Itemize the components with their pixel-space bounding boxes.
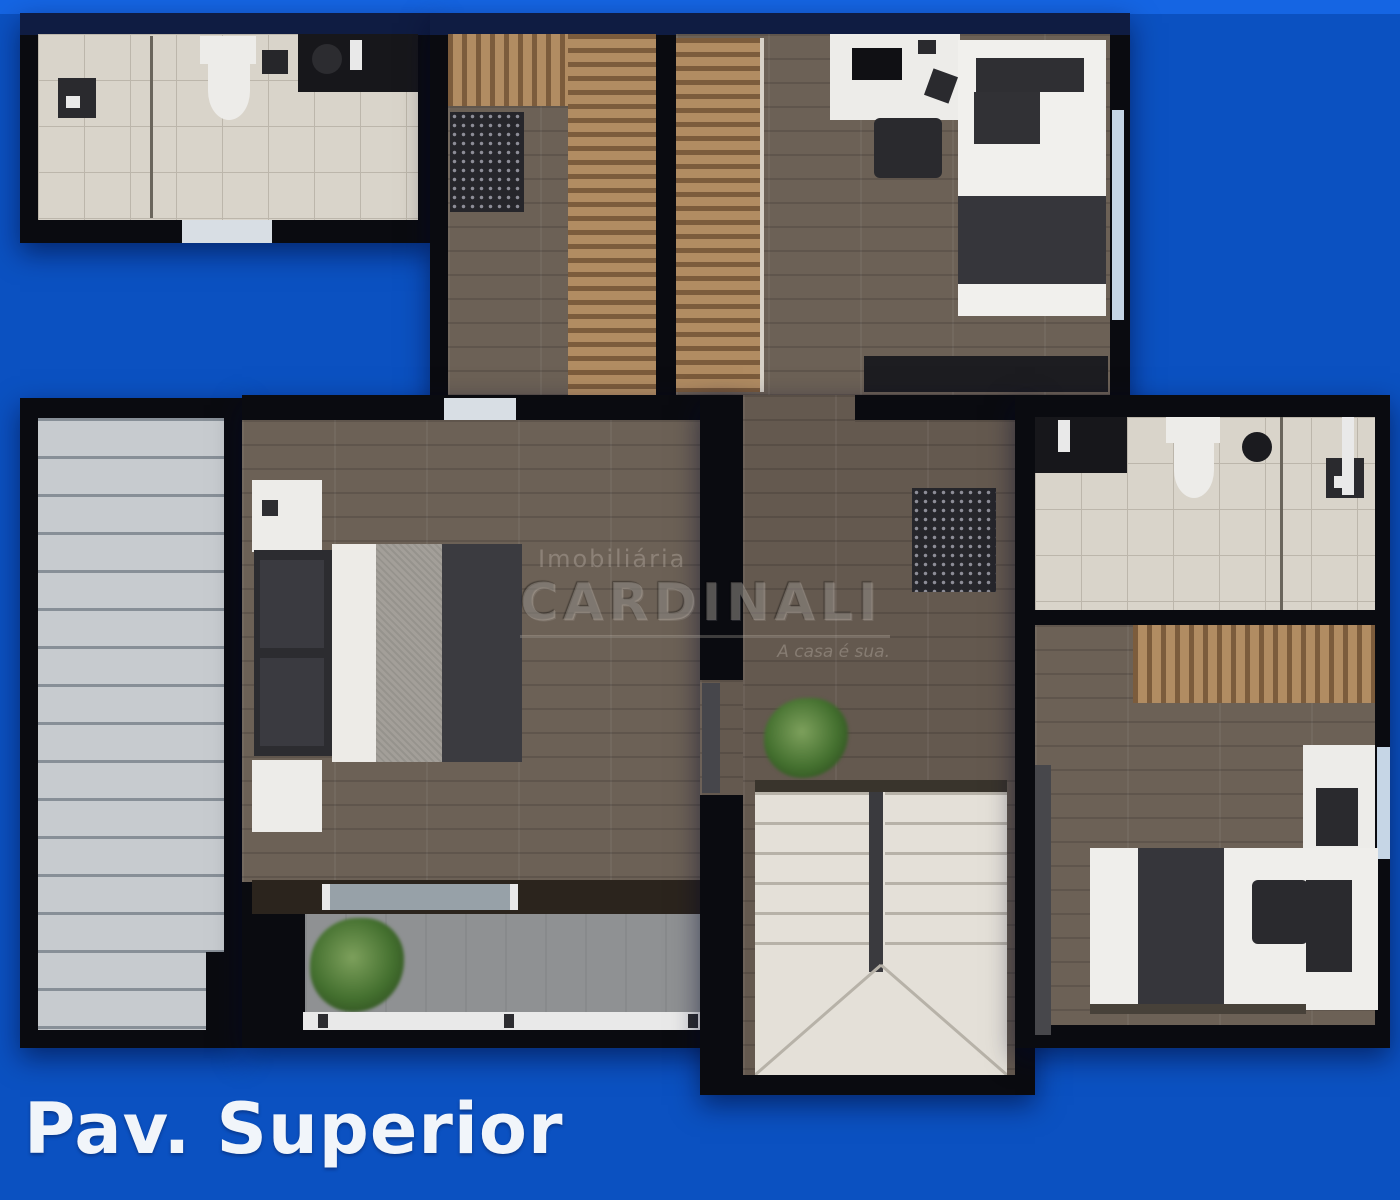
master-bed-pillow [260,560,324,648]
shower-divider [1280,417,1283,610]
toilet-tank [1166,417,1220,443]
toilet-tank [200,36,256,64]
vanity-faucet [1058,420,1070,452]
stairs-flight-right [885,792,1007,970]
master-bed-blanket [376,544,442,762]
railing-post [318,1014,328,1028]
bedroom-1-folded-blanket [974,92,1040,144]
stairs-flight-left [755,792,871,970]
closet-wardrobe-right [568,34,656,396]
wall-highlight [430,13,1130,35]
bedroom-1-pillow [976,58,1084,92]
hallway-rug [912,488,996,592]
balcony-sliding-door [330,884,510,910]
bedroom-2-window [1377,747,1390,859]
office-chair [1252,880,1308,944]
master-bed-throw [442,544,522,762]
vanity-sink [312,44,342,74]
floor-plan-rendering: Imobiliária CARDINALI A casa é sua. Pav.… [0,0,1400,1200]
toilet-bowl [1174,442,1214,498]
master-door-leaf [702,683,720,793]
bedroom-2-bed-frame [1090,1004,1306,1014]
stairs-landing-lines [755,945,1007,1075]
nightstand [252,760,322,832]
bathroom-1-door-opening [182,220,272,243]
vanity-counter [1035,417,1127,473]
vanity-faucet [350,40,362,70]
background-top-strip [0,0,1400,14]
floor-drain [1242,432,1272,462]
closet-wardrobe-top [448,34,570,106]
desk-monitor [1316,788,1358,846]
bedroom-1-window [1112,110,1124,320]
railing-post [504,1014,514,1028]
door-frame [510,884,518,910]
desk-accessory [918,40,936,54]
door-frame [322,884,330,910]
office-chair [874,118,942,178]
bedroom-1-blanket [958,196,1106,284]
laptop [852,48,902,80]
master-closet-door-opening [444,398,516,420]
bedroom-1-wardrobe [676,38,760,392]
master-bed-sheet [332,544,376,762]
stairs-top-edge [755,780,1007,792]
toilet-bowl [208,62,250,120]
nightstand-lamp [262,500,278,516]
railing-post [688,1014,698,1028]
wall-highlight [20,13,435,35]
bedroom-1-low-cabinet [864,356,1108,392]
bathroom-1-bin [262,50,288,74]
closet-rug [450,112,524,212]
bedroom-1-wardrobe-edge [760,38,764,392]
shower-drain [66,96,80,108]
nightstand [252,480,322,552]
hallway-top-opening [743,395,855,423]
bedroom-2-blanket [1138,848,1224,1010]
roof-notch [206,952,242,1030]
bedroom-2-wardrobe [1133,625,1375,703]
shower-head [1342,417,1354,495]
master-bed-pillow [260,658,324,746]
bathroom-1-divider [150,36,153,218]
roof-left [38,418,224,1030]
page-title: Pav. Superior [24,1088,564,1170]
desk-return [1306,880,1352,972]
bedroom-2-door-leaf [1035,765,1051,1035]
